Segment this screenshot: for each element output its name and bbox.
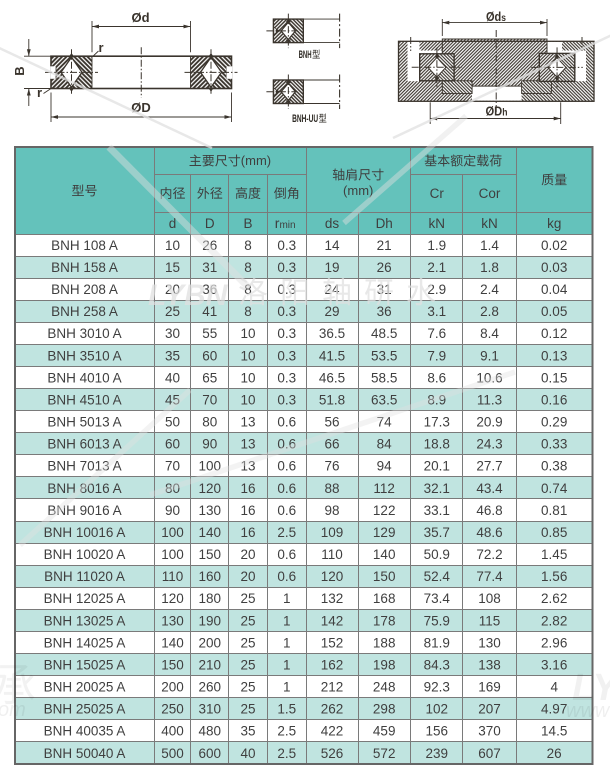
svg-text:2.62: 2.62 (541, 591, 567, 606)
svg-text:BNH 40035 A: BNH 40035 A (44, 724, 126, 739)
svg-text:(mm): (mm) (343, 183, 373, 198)
svg-text:r: r (98, 40, 103, 55)
svg-text:98: 98 (324, 503, 339, 518)
svg-text:BNH 10016 A: BNH 10016 A (44, 525, 126, 540)
svg-text:0.6: 0.6 (277, 503, 296, 518)
svg-text:72.2: 72.2 (476, 547, 502, 562)
svg-text:2.5: 2.5 (277, 746, 296, 761)
svg-text:130: 130 (199, 503, 222, 518)
svg-text:BNH 258 A: BNH 258 A (51, 304, 118, 319)
svg-text:200: 200 (199, 635, 222, 650)
svg-text:100: 100 (161, 525, 184, 540)
svg-text:156: 156 (426, 724, 449, 739)
svg-text:10: 10 (240, 393, 255, 408)
svg-text:248: 248 (373, 680, 396, 695)
svg-text:BNH 25025 A: BNH 25025 A (44, 702, 126, 717)
svg-text:70: 70 (165, 459, 180, 474)
svg-text:108: 108 (478, 591, 501, 606)
svg-text:150: 150 (161, 658, 184, 673)
svg-text:32.1: 32.1 (424, 481, 450, 496)
svg-text:1: 1 (283, 635, 291, 650)
svg-text:35.7: 35.7 (424, 525, 450, 540)
svg-text:180: 180 (199, 591, 222, 606)
svg-text:36: 36 (377, 304, 392, 319)
svg-text:BNH-UU: BNH-UU (292, 113, 318, 125)
svg-text:35: 35 (165, 348, 180, 363)
svg-text:152: 152 (321, 635, 344, 650)
svg-text:90: 90 (165, 503, 180, 518)
svg-text:20: 20 (240, 569, 255, 584)
svg-text:607: 607 (478, 746, 501, 761)
svg-text:100: 100 (161, 547, 184, 562)
svg-text:188: 188 (373, 635, 396, 650)
svg-text:BNH 3010 A: BNH 3010 A (47, 326, 121, 341)
svg-text:BNH 10020 A: BNH 10020 A (44, 547, 126, 562)
svg-text:132: 132 (321, 591, 344, 606)
svg-text:BNH 3510 A: BNH 3510 A (47, 348, 121, 363)
svg-text:40: 40 (240, 746, 255, 761)
svg-text:150: 150 (199, 547, 222, 562)
svg-text:0.6: 0.6 (277, 547, 296, 562)
svg-text:31: 31 (377, 282, 392, 297)
svg-text:0.38: 0.38 (541, 459, 567, 474)
svg-text:0.3: 0.3 (277, 260, 296, 275)
svg-text:BNH 50040 A: BNH 50040 A (44, 746, 126, 761)
svg-text:2.4: 2.4 (480, 282, 499, 297)
svg-text:25: 25 (240, 680, 255, 695)
svg-text:2.82: 2.82 (541, 613, 567, 628)
svg-text:BNH 15025 A: BNH 15025 A (44, 658, 126, 673)
svg-text:160: 160 (199, 569, 222, 584)
svg-text:8: 8 (244, 304, 252, 319)
svg-text:94: 94 (377, 459, 393, 474)
svg-text:0.3: 0.3 (277, 393, 296, 408)
svg-text:0.3: 0.3 (277, 304, 296, 319)
svg-text:14.5: 14.5 (541, 724, 567, 739)
svg-text:Ød: Ød (131, 10, 149, 25)
svg-text:41.5: 41.5 (319, 348, 345, 363)
svg-text:1: 1 (283, 658, 291, 673)
svg-text:122: 122 (373, 503, 396, 518)
svg-text:2.5: 2.5 (277, 724, 296, 739)
svg-text:BNH 20025 A: BNH 20025 A (44, 680, 126, 695)
svg-text:1.56: 1.56 (541, 569, 567, 584)
svg-text:84: 84 (377, 437, 393, 452)
svg-text:46.8: 46.8 (476, 503, 502, 518)
svg-text:92.3: 92.3 (424, 680, 450, 695)
svg-text:120: 120 (161, 591, 184, 606)
svg-text:20: 20 (240, 547, 255, 562)
svg-text:142: 142 (321, 613, 344, 628)
svg-text:kN: kN (429, 216, 446, 231)
svg-text:46.5: 46.5 (319, 370, 345, 385)
svg-text:25: 25 (240, 591, 255, 606)
svg-text:25: 25 (240, 635, 255, 650)
svg-text:1.9: 1.9 (427, 238, 446, 253)
svg-text:50.9: 50.9 (424, 547, 450, 562)
svg-text:56: 56 (324, 415, 339, 430)
svg-text:33.1: 33.1 (424, 503, 450, 518)
svg-text:3.1: 3.1 (427, 304, 446, 319)
svg-text:8.4: 8.4 (480, 326, 499, 341)
svg-text:(mm): (mm) (241, 153, 271, 168)
svg-text:r: r (37, 85, 42, 100)
svg-text:115: 115 (479, 613, 501, 628)
svg-text:48.6: 48.6 (476, 525, 502, 540)
svg-text:27.7: 27.7 (476, 459, 502, 474)
svg-text:400: 400 (161, 724, 184, 739)
svg-text:572: 572 (373, 746, 396, 761)
svg-text:310: 310 (199, 702, 222, 717)
svg-text:3.16: 3.16 (541, 658, 567, 673)
svg-text:2.1: 2.1 (427, 260, 446, 275)
svg-text:80: 80 (202, 415, 217, 430)
svg-text:102: 102 (426, 702, 449, 717)
svg-text:150: 150 (373, 569, 396, 584)
svg-text:13: 13 (240, 415, 255, 430)
svg-text:0.15: 0.15 (541, 370, 567, 385)
svg-text:10: 10 (165, 238, 180, 253)
svg-text:11.3: 11.3 (477, 393, 502, 408)
svg-text:26: 26 (377, 260, 392, 275)
svg-text:1: 1 (283, 680, 291, 695)
svg-text:1.5: 1.5 (277, 702, 296, 717)
svg-text:31: 31 (202, 260, 217, 275)
svg-text:17.3: 17.3 (424, 415, 450, 430)
svg-text:190: 190 (199, 613, 222, 628)
svg-text:198: 198 (373, 658, 396, 673)
svg-text:2.96: 2.96 (541, 635, 567, 650)
svg-text:0.6: 0.6 (277, 415, 296, 430)
svg-text:15: 15 (165, 260, 180, 275)
svg-text:BNH 208 A: BNH 208 A (51, 282, 118, 297)
svg-text:BNH 158 A: BNH 158 A (51, 260, 118, 275)
svg-text:0.3: 0.3 (277, 238, 296, 253)
svg-text:63.5: 63.5 (371, 393, 397, 408)
svg-text:1: 1 (283, 591, 291, 606)
svg-text:14: 14 (324, 238, 340, 253)
svg-text:24.3: 24.3 (476, 437, 502, 452)
svg-text:kg: kg (547, 216, 561, 231)
svg-text:75.9: 75.9 (424, 613, 450, 628)
svg-text:0.3: 0.3 (277, 282, 296, 297)
svg-text:0.3: 0.3 (277, 326, 296, 341)
svg-text:13: 13 (240, 437, 255, 452)
svg-text:110: 110 (321, 547, 343, 562)
svg-text:51.8: 51.8 (319, 393, 345, 408)
svg-text:138: 138 (478, 658, 501, 673)
svg-text:0.05: 0.05 (541, 304, 567, 319)
svg-text:0.16: 0.16 (541, 393, 567, 408)
svg-text:B: B (243, 216, 252, 231)
svg-text:40: 40 (165, 370, 180, 385)
svg-text:BNH 13025 A: BNH 13025 A (44, 613, 126, 628)
svg-text:73.4: 73.4 (424, 591, 451, 606)
svg-text:112: 112 (373, 481, 395, 496)
svg-text:0.3: 0.3 (277, 370, 296, 385)
svg-text:60: 60 (165, 437, 180, 452)
svg-text:130: 130 (161, 613, 184, 628)
svg-text:kN: kN (481, 216, 498, 231)
svg-text:B: B (12, 66, 27, 75)
svg-text:9.1: 9.1 (480, 348, 499, 363)
svg-text:8: 8 (244, 260, 252, 275)
svg-text:65: 65 (202, 370, 217, 385)
svg-text:210: 210 (199, 658, 222, 673)
svg-text:260: 260 (199, 680, 222, 695)
svg-text:25: 25 (240, 658, 255, 673)
svg-text:239: 239 (426, 746, 449, 761)
svg-text:88: 88 (324, 481, 339, 496)
svg-text:0.33: 0.33 (541, 437, 567, 452)
svg-text:526: 526 (321, 746, 344, 761)
svg-text:4: 4 (550, 680, 558, 695)
svg-text:298: 298 (373, 702, 396, 717)
svg-text:76: 76 (324, 459, 339, 474)
svg-text:0.03: 0.03 (541, 260, 567, 275)
svg-text:0.6: 0.6 (277, 459, 296, 474)
svg-text:16: 16 (240, 503, 255, 518)
svg-text:53.5: 53.5 (371, 348, 397, 363)
svg-text:43.4: 43.4 (476, 481, 503, 496)
svg-text:50: 50 (165, 415, 180, 430)
svg-text:168: 168 (373, 591, 396, 606)
svg-text:BNH 11020 A: BNH 11020 A (44, 569, 125, 584)
svg-text:140: 140 (161, 635, 184, 650)
svg-text:0.6: 0.6 (277, 569, 296, 584)
svg-text:BNH: BNH (299, 49, 312, 61)
svg-text:52.4: 52.4 (424, 569, 451, 584)
svg-text:110: 110 (162, 569, 184, 584)
svg-text:BNH 14025 A: BNH 14025 A (44, 635, 126, 650)
svg-text:25: 25 (240, 702, 255, 717)
svg-text:10: 10 (240, 348, 255, 363)
svg-text:0.04: 0.04 (541, 282, 568, 297)
svg-text:58.5: 58.5 (371, 370, 397, 385)
svg-text:35: 35 (240, 724, 255, 739)
svg-text:0.12: 0.12 (541, 326, 567, 341)
svg-text:0.13: 0.13 (541, 348, 567, 363)
svg-text:2.5: 2.5 (277, 525, 296, 540)
svg-text:16: 16 (240, 481, 255, 496)
svg-text:262: 262 (321, 702, 344, 717)
svg-text:81.9: 81.9 (424, 635, 450, 650)
svg-text:77.4: 77.4 (476, 569, 503, 584)
svg-text:207: 207 (478, 702, 501, 717)
svg-text:26: 26 (547, 746, 562, 761)
svg-text:ds: ds (325, 216, 340, 231)
svg-text:36.5: 36.5 (319, 326, 345, 341)
svg-text:0.6: 0.6 (277, 481, 296, 496)
svg-text:0.02: 0.02 (541, 238, 567, 253)
svg-text:7.9: 7.9 (427, 348, 446, 363)
svg-text:1: 1 (283, 613, 291, 628)
svg-text:120: 120 (321, 569, 344, 584)
svg-text:600: 600 (199, 746, 222, 761)
svg-text:21: 21 (377, 238, 392, 253)
svg-text:55: 55 (202, 326, 217, 341)
svg-text:140: 140 (199, 525, 222, 540)
svg-text:120: 120 (199, 481, 222, 496)
svg-text:500: 500 (161, 746, 184, 761)
svg-text:109: 109 (321, 525, 344, 540)
svg-text:29: 29 (324, 304, 339, 319)
svg-text:www: www (566, 700, 610, 722)
svg-text:10: 10 (240, 370, 255, 385)
svg-text:BNH 108 A: BNH 108 A (51, 238, 118, 253)
svg-text:BNH 6013 A: BNH 6013 A (47, 437, 121, 452)
svg-text:BNH 4510 A: BNH 4510 A (47, 393, 121, 408)
svg-text:D: D (205, 216, 215, 231)
svg-text:25: 25 (240, 613, 255, 628)
svg-text:370: 370 (478, 724, 501, 739)
svg-text:10: 10 (240, 326, 255, 341)
svg-text:162: 162 (321, 658, 344, 673)
svg-text:8.6: 8.6 (427, 370, 446, 385)
svg-text:130: 130 (478, 635, 501, 650)
svg-text:20.9: 20.9 (476, 415, 502, 430)
svg-text:129: 129 (373, 525, 396, 540)
svg-text:0.81: 0.81 (541, 503, 567, 518)
svg-text:480: 480 (199, 724, 222, 739)
svg-text:BNH 5013 A: BNH 5013 A (47, 415, 121, 430)
svg-text:178: 178 (373, 613, 396, 628)
svg-text:4.97: 4.97 (541, 702, 567, 717)
svg-text:8: 8 (244, 238, 252, 253)
svg-text:140: 140 (373, 547, 396, 562)
svg-text:Dh: Dh (376, 216, 393, 231)
svg-text:1.45: 1.45 (541, 547, 567, 562)
svg-text:48.5: 48.5 (371, 326, 397, 341)
svg-text:60: 60 (202, 348, 217, 363)
svg-text:BNH 12025 A: BNH 12025 A (44, 591, 126, 606)
svg-text:84.3: 84.3 (424, 658, 450, 673)
svg-text:169: 169 (478, 680, 501, 695)
svg-text:200: 200 (161, 680, 184, 695)
svg-text:70: 70 (202, 393, 217, 408)
svg-text:ØD: ØD (131, 100, 151, 115)
svg-text:Cor: Cor (479, 186, 501, 201)
svg-text:1.4: 1.4 (480, 238, 499, 253)
svg-text:250: 250 (161, 702, 184, 717)
svg-text:Cr: Cr (430, 186, 445, 201)
svg-text:0.74: 0.74 (541, 481, 568, 496)
svg-text:0.85: 0.85 (541, 525, 567, 540)
svg-text:16: 16 (240, 525, 255, 540)
svg-text:om: om (0, 699, 26, 721)
svg-text:19: 19 (324, 260, 339, 275)
svg-text:0.3: 0.3 (277, 348, 296, 363)
svg-text:459: 459 (373, 724, 396, 739)
svg-text:2.8: 2.8 (480, 304, 499, 319)
svg-text:212: 212 (321, 680, 344, 695)
svg-text:30: 30 (165, 326, 180, 341)
svg-text:90: 90 (202, 437, 217, 452)
svg-text:7.6: 7.6 (427, 326, 446, 341)
svg-text:1.8: 1.8 (480, 260, 499, 275)
svg-text:0.29: 0.29 (541, 415, 567, 430)
svg-text:LYBN: LYBN (148, 279, 229, 312)
svg-text:20.1: 20.1 (424, 459, 450, 474)
svg-text:422: 422 (321, 724, 344, 739)
svg-text:BNH 4010 A: BNH 4010 A (47, 370, 121, 385)
svg-text:18.8: 18.8 (424, 437, 450, 452)
svg-text:66: 66 (324, 437, 339, 452)
